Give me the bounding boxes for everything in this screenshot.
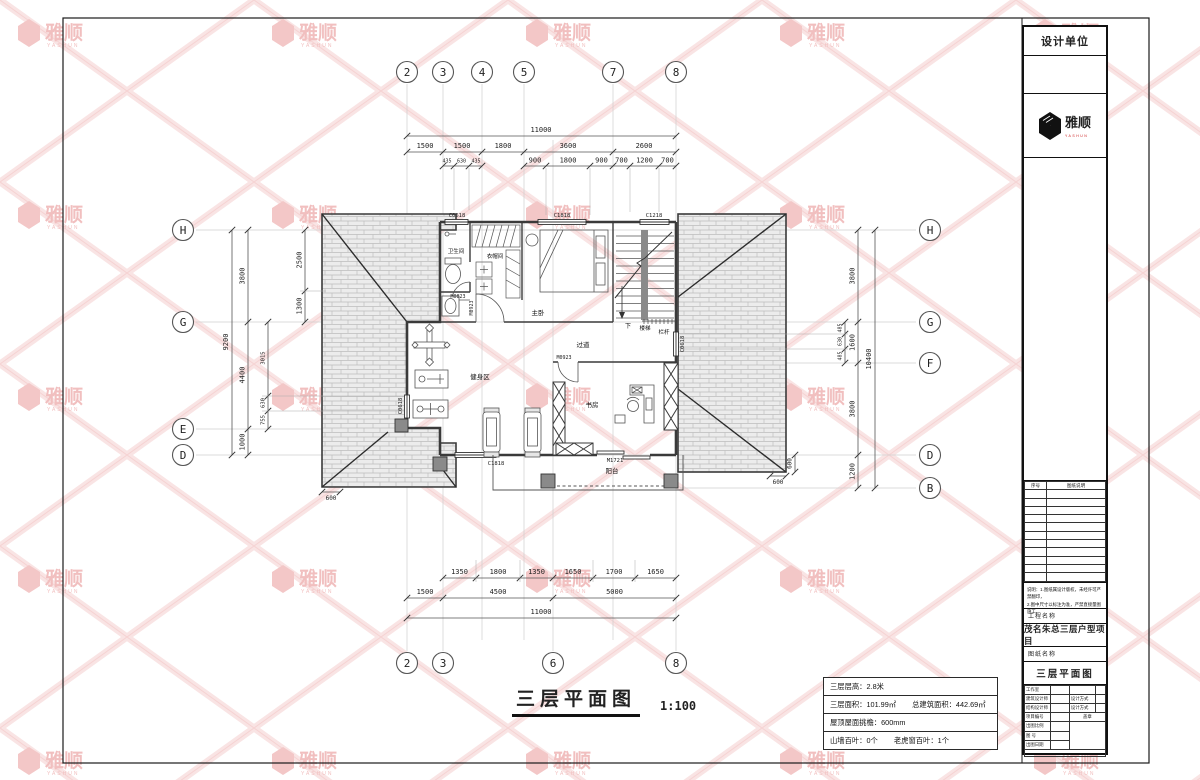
info-value: 442.69㎡ xyxy=(956,700,986,709)
dim-label: 1000 xyxy=(239,434,247,451)
room-label: 健身区 xyxy=(470,372,490,381)
room-label: 书房 xyxy=(586,400,599,409)
info-label: 老虎窗百叶： xyxy=(894,736,938,745)
dim-label: 600 xyxy=(787,458,794,469)
grid-bubble-label: G xyxy=(927,316,934,329)
area-info-table: 三层层高：2.8米 三层面积：101.99㎡ 总建筑面积：442.69㎡ 屋顶屋… xyxy=(823,677,998,750)
title-block-notes: 说明：1.图纸属设计版权，未经许可严禁翻印， 2.图中尺寸以标注为准，严禁直接量… xyxy=(1024,582,1106,609)
dim-label: 2600 xyxy=(636,142,653,150)
opening-label: C1818 xyxy=(488,461,505,467)
right-roof xyxy=(678,214,786,472)
dim-label: 4500 xyxy=(490,588,507,596)
grid-bubble-label: 8 xyxy=(673,657,680,670)
grid-bubble-label: G xyxy=(180,316,187,329)
room-label: 过道 xyxy=(577,340,591,349)
dim-label: 630 xyxy=(261,398,267,408)
title-block: 设计单位 雅顺 YASHUN 序号 图纸说明 说明：1.图纸属设计版权，未经许可… xyxy=(1022,25,1108,755)
dim-label: 435 xyxy=(442,159,451,165)
design-unit-header: 设计单位 xyxy=(1024,27,1106,56)
dim-label: 1800 xyxy=(560,157,577,165)
grid-bubble-label: H xyxy=(927,224,934,237)
drawing-list-table: 序号 图纸说明 xyxy=(1024,481,1106,582)
dim-label: 3600 xyxy=(560,142,577,150)
dim-label: 630 xyxy=(838,337,844,346)
brand-logo: 雅顺 YASHUN xyxy=(1024,94,1106,158)
dim-label: 1650 xyxy=(565,568,582,576)
grid-bubble-label: 4 xyxy=(479,66,486,79)
brand-subtext: YASHUN xyxy=(1065,134,1091,138)
treadmill-icon xyxy=(524,408,541,457)
toilet-icon xyxy=(445,258,461,284)
dim-label: 3800 xyxy=(239,268,247,285)
info-label: 总建筑面积： xyxy=(912,700,956,709)
dim-label: 9200 xyxy=(222,334,230,351)
room-label: 楼梯 xyxy=(639,324,651,332)
dim-label: 1500 xyxy=(454,142,471,150)
opening-label: M1721 xyxy=(607,458,624,464)
grid-bubble-label: B xyxy=(927,482,934,495)
info-label: 屋顶屋面挑檐： xyxy=(830,718,881,727)
opening-label: C0618 xyxy=(449,213,466,219)
dim-label: 630 xyxy=(457,159,466,165)
dim-label: 2500 xyxy=(296,252,304,269)
title-block-empty-cell xyxy=(1024,158,1106,481)
list-header-no: 序号 xyxy=(1025,482,1047,490)
dim-label: 1350 xyxy=(528,568,545,576)
dim-label: 1800 xyxy=(490,568,507,576)
floor-plan-svg: 雅顺 YASHUN xyxy=(0,0,1200,780)
dim-label: 11000 xyxy=(530,126,551,134)
dim-label: 3015 xyxy=(261,351,267,364)
dim-label: 600 xyxy=(326,495,337,502)
grid-bubble-label: 3 xyxy=(440,657,447,670)
grid-bubble-label: F xyxy=(927,357,934,370)
room-label: 下 xyxy=(625,323,631,330)
opening-label: C1818 xyxy=(554,213,571,219)
dim-label: 1200 xyxy=(849,463,857,480)
room-label: 衣帽间 xyxy=(487,252,504,260)
opening-label: C0618 xyxy=(398,398,404,415)
info-value: 0个 xyxy=(866,736,877,745)
info-value: 1个 xyxy=(938,736,949,745)
dim-label: 5000 xyxy=(606,588,623,596)
opening-label: M0923 xyxy=(556,355,571,361)
opening-label: C0618 xyxy=(680,336,686,353)
dim-label: 1350 xyxy=(451,568,468,576)
opening-label: C1218 xyxy=(646,213,663,219)
chair-icon xyxy=(627,397,639,411)
grid-bubble-label: 3 xyxy=(440,66,447,79)
info-value: 2.8米 xyxy=(866,682,883,691)
dim-label: 10400 xyxy=(865,348,873,369)
grid-bubble-label: D xyxy=(927,449,934,462)
dim-label: 11000 xyxy=(530,608,551,616)
info-label: 山墙百叶： xyxy=(830,736,866,745)
dim-label: 1600 xyxy=(849,334,857,351)
dim-label: 1650 xyxy=(647,568,664,576)
info-value: 600mm xyxy=(881,718,905,727)
grid-bubble-label: 5 xyxy=(521,66,528,79)
project-name-label: 工程名称 xyxy=(1024,609,1106,624)
dim-label: 1800 xyxy=(495,142,512,150)
dim-label: 1200 xyxy=(636,157,653,165)
project-name: 茂名朱总三层户型项目 xyxy=(1024,624,1106,647)
list-header-desc: 图纸说明 xyxy=(1047,482,1106,490)
sheet-scale: 1:100 xyxy=(660,699,696,717)
drawing-sheet: 雅顺 YASHUN xyxy=(0,0,1200,780)
info-label: 三层层高： xyxy=(830,682,866,691)
opening-label: M0923 xyxy=(469,300,475,315)
sheet-title-text: 三层平面图 xyxy=(512,684,640,717)
drawing-name-label: 图纸名称 xyxy=(1024,647,1106,662)
watermark-pattern xyxy=(0,0,1200,780)
dim-label: 1700 xyxy=(606,568,623,576)
info-value: 101.99㎡ xyxy=(866,700,896,709)
treadmill-icon xyxy=(483,408,500,457)
grid-bubble-label: 2 xyxy=(404,657,411,670)
dim-label: 900 xyxy=(529,157,542,165)
room-label: 主卧 xyxy=(532,308,546,317)
dim-label: 3800 xyxy=(849,401,857,418)
dim-label: 485 xyxy=(838,351,844,360)
opening-label: M0823 xyxy=(450,294,465,300)
room-label: 卫生间 xyxy=(448,247,465,255)
dim-label: 435 xyxy=(471,159,480,165)
dim-label: 485 xyxy=(838,323,844,332)
title-block-empty-cell xyxy=(1024,56,1106,94)
info-label: 三层面积： xyxy=(830,700,866,709)
grid-bubble-label: 8 xyxy=(673,66,680,79)
brand-name: 雅顺 xyxy=(1065,115,1091,130)
dim-label: 1500 xyxy=(417,142,434,150)
dim-label: 900 xyxy=(595,157,608,165)
grid-bubble-label: D xyxy=(180,449,187,462)
dim-label: 3800 xyxy=(849,268,857,285)
signature-table: 工作室 建筑设计师设计方式 结构设计师设计方式 项目编号盖章 出图比例 图 号 … xyxy=(1024,685,1106,757)
grid-bubble-label: 2 xyxy=(404,66,411,79)
sheet-title: 三层平面图 1:100 xyxy=(512,684,696,717)
dim-label: 700 xyxy=(615,157,628,165)
drawing-name: 三层平面图 xyxy=(1024,662,1106,685)
dim-label: 755 xyxy=(261,415,267,425)
dim-label: 600 xyxy=(773,479,784,486)
room-label: 栏杆 xyxy=(658,328,670,336)
dim-label: 700 xyxy=(661,157,674,165)
dim-label: 1300 xyxy=(296,298,304,315)
dim-label: 1500 xyxy=(417,588,434,596)
dim-label: 4400 xyxy=(239,367,247,384)
brand-cube-icon xyxy=(1039,111,1061,140)
grid-bubble-label: 6 xyxy=(550,657,557,670)
grid-bubble-label: E xyxy=(180,423,187,436)
grid-bubble-label: 7 xyxy=(610,66,617,79)
grid-bubble-label: H xyxy=(180,224,187,237)
room-label: 阳台 xyxy=(606,466,619,475)
